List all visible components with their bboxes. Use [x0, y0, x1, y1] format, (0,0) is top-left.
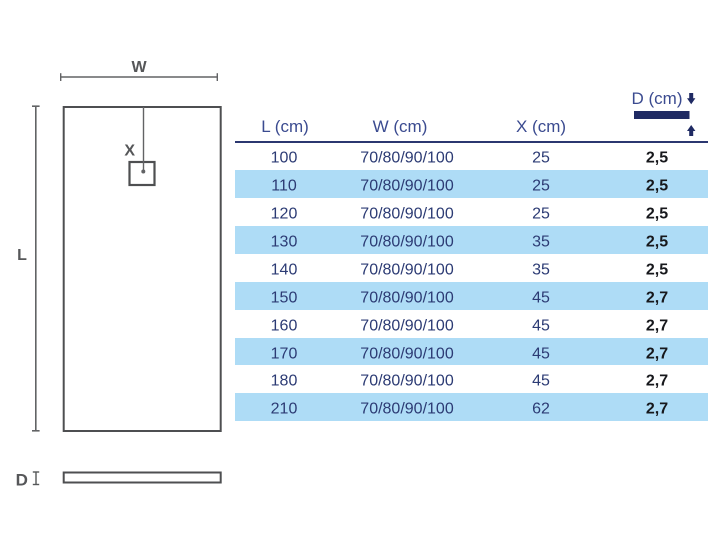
svg-text:D: D: [16, 471, 28, 490]
svg-text:W: W: [131, 59, 147, 76]
svg-text:X: X: [124, 143, 135, 160]
svg-text:L: L: [17, 247, 27, 264]
